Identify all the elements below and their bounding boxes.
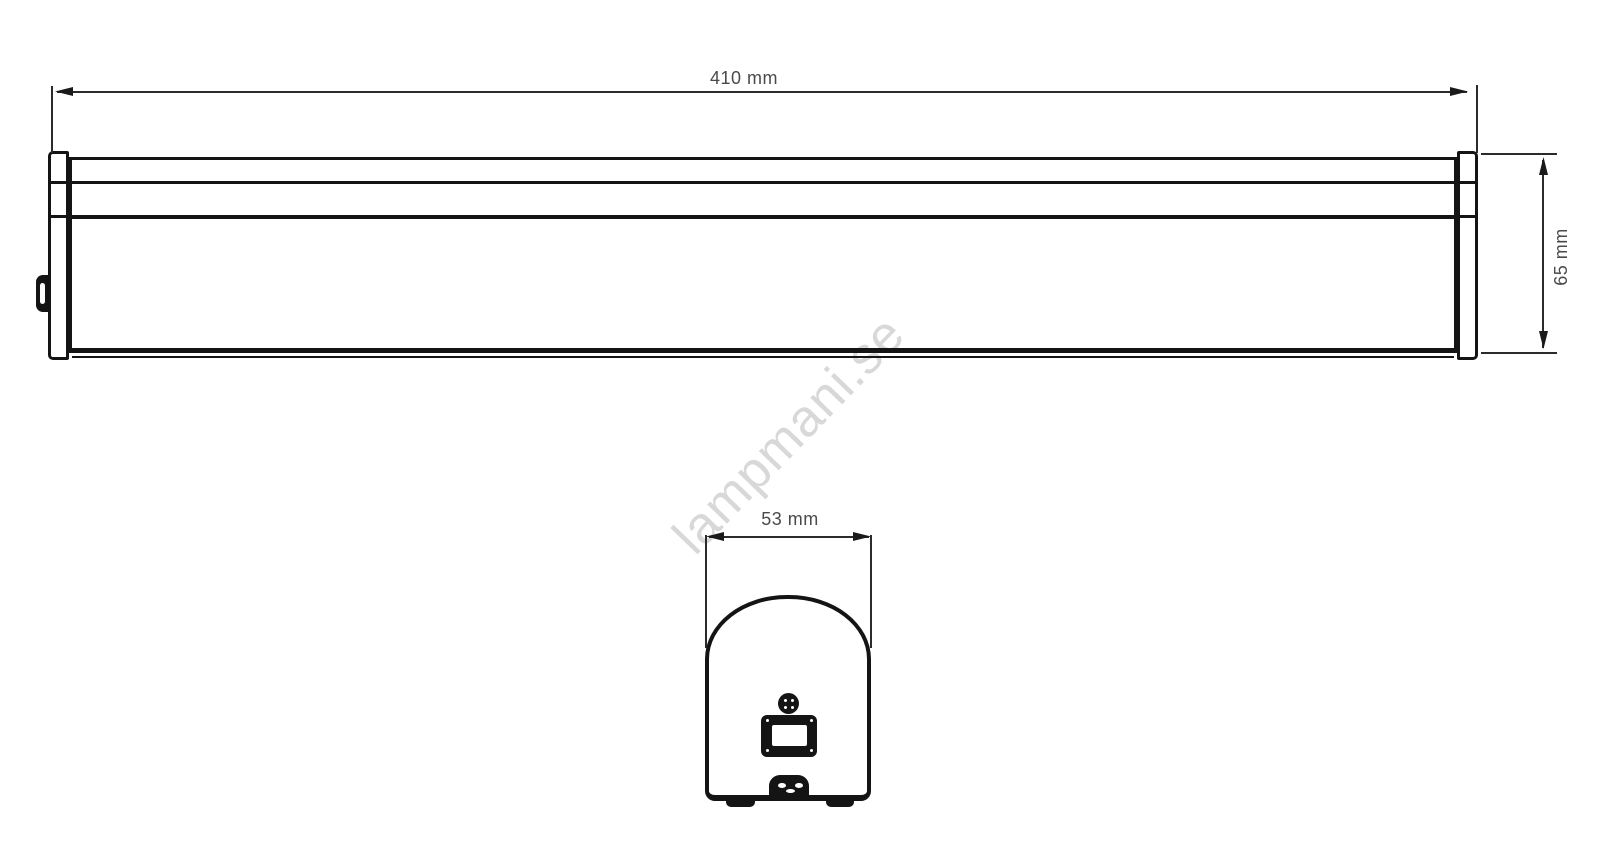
grommet-notch — [786, 789, 795, 793]
screw-dot — [791, 706, 794, 709]
connector-window — [772, 725, 807, 746]
dimension-length-line — [57, 91, 1467, 93]
screw-dot — [791, 699, 794, 702]
dimension-depth-label: 53 mm — [710, 509, 870, 529]
foot-left — [726, 800, 755, 807]
extension-line-left — [51, 86, 53, 153]
dimension-length-label: 410 mm — [664, 68, 824, 88]
arrowhead-up-icon — [1539, 157, 1548, 175]
left-cap-seam-upper — [51, 181, 67, 184]
connector-corner-dot — [810, 749, 813, 752]
right-cap-seam-upper — [1460, 181, 1476, 184]
technical-drawing-canvas: 410 mm 65 mm — [0, 0, 1600, 862]
connector-corner-dot — [766, 719, 769, 722]
screw-dot — [784, 699, 787, 702]
body-bottom-shadow-line — [72, 356, 1454, 358]
screw-head-icon — [778, 693, 799, 714]
diffuser-line-upper — [71, 181, 1455, 184]
fixture-body — [69, 157, 1457, 353]
dimension-depth-line — [709, 536, 869, 538]
extension-line-bottom — [1481, 352, 1557, 354]
extension-line-right — [870, 535, 872, 648]
arrowhead-right-icon — [1450, 87, 1468, 96]
connector-corner-dot — [766, 749, 769, 752]
cable-grommet — [769, 775, 809, 799]
screw-dot — [784, 706, 787, 709]
foot-right — [826, 800, 854, 807]
connector-corner-dot — [810, 719, 813, 722]
grommet-hole — [795, 783, 803, 788]
grommet-hole — [778, 783, 786, 788]
left-cap-seam-lower — [51, 215, 67, 218]
extension-line-right — [1476, 85, 1478, 153]
right-cap-seam-lower — [1460, 215, 1476, 218]
mounting-clip-slot — [40, 283, 45, 304]
arrowhead-left-icon — [55, 87, 73, 96]
dimension-height-label: 65 mm — [1551, 212, 1571, 302]
dimension-height-line — [1542, 160, 1544, 348]
arrowhead-right-icon — [853, 532, 871, 541]
extension-line-left — [705, 535, 707, 648]
diffuser-line-lower — [71, 215, 1455, 219]
extension-line-top — [1481, 153, 1557, 155]
arrowhead-down-icon — [1539, 331, 1548, 349]
arrowhead-left-icon — [706, 532, 724, 541]
